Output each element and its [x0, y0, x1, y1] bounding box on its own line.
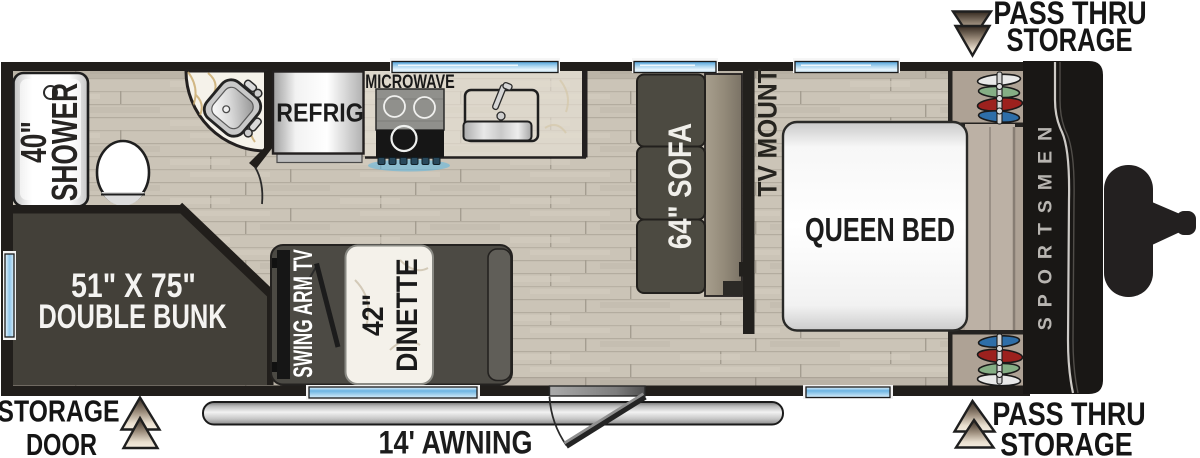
svg-text:14' AWNING: 14' AWNING [378, 425, 532, 458]
svg-text:QUEEN BED: QUEEN BED [805, 212, 955, 249]
svg-text:DOOR: DOOR [26, 427, 97, 458]
svg-text:REFRIG: REFRIG [276, 99, 363, 128]
svg-text:DOUBLE BUNK: DOUBLE BUNK [38, 299, 227, 336]
svg-text:TV MOUNT: TV MOUNT [753, 68, 782, 196]
svg-text:STORAGE: STORAGE [1000, 427, 1132, 458]
svg-text:SPORTSMEN: SPORTSMEN [1035, 117, 1057, 331]
svg-text:STORAGE: STORAGE [1006, 23, 1132, 58]
svg-text:64" SOFA: 64" SOFA [663, 123, 698, 249]
svg-text:STORAGE: STORAGE [0, 394, 120, 428]
svg-text:SWING ARM TV: SWING ARM TV [288, 249, 318, 378]
